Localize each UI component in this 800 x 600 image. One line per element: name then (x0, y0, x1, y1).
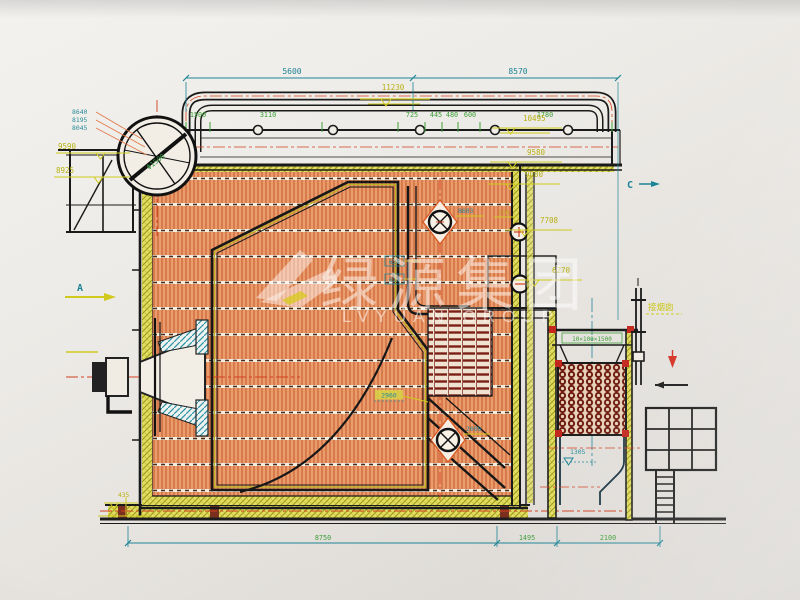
top-steam-piping (140, 96, 622, 166)
elev-9580: 9580 (527, 148, 546, 157)
elev-10495: 10495 (523, 114, 546, 123)
economizer-spec-label: 10×100×1500 (572, 336, 612, 343)
dim-top-left: 5600 (282, 67, 301, 76)
elev-7708: 7708 (540, 216, 559, 225)
drum-leader-2: 8195 (72, 116, 88, 124)
chimney-pipe (631, 278, 646, 385)
dim-445: 445 (430, 111, 442, 119)
elev-9590: 9590 (58, 142, 77, 151)
view-label-a: A (77, 283, 83, 294)
dim-8750: 8750 (315, 534, 331, 542)
dim-480: 480 (446, 111, 458, 119)
elev-11230: 11230 (382, 83, 405, 92)
dim-725: 725 (406, 111, 418, 119)
dim-600: 600 (464, 111, 476, 119)
dim-2960: 2960 (381, 392, 397, 400)
dim-top-right: 8570 (508, 67, 527, 76)
elev-9080: 9080 (525, 170, 544, 179)
dim-3110: 3110 (260, 111, 276, 119)
chimney-connection-label: 接烟囱 (648, 302, 674, 313)
elev-8925: 8925 (56, 166, 74, 175)
boiler-elevation-drawing: Φ1500 (0, 0, 800, 600)
dim-770: 770 (498, 210, 509, 217)
drum-leader-3: 8045 (72, 124, 88, 132)
dim-1500: 1500 (190, 111, 206, 119)
dim-8603: 8603 (458, 207, 474, 215)
dim-1495: 1495 (519, 534, 535, 542)
dim-2100: 2100 (600, 534, 616, 542)
watermark-en: LVYUAN GROUP (342, 307, 560, 326)
drum-leader-1: 8640 (72, 108, 88, 116)
elev-1305: 1305 (570, 448, 586, 456)
access-ladder (656, 470, 674, 524)
photographed-boiler-drawing: Φ1500 (0, 0, 800, 600)
elevation-flag (655, 350, 688, 389)
dim-2008: 2008 (466, 425, 482, 433)
view-label-c: C (627, 180, 633, 191)
platform-grid (646, 408, 716, 470)
elev-435: 435 (118, 492, 129, 499)
